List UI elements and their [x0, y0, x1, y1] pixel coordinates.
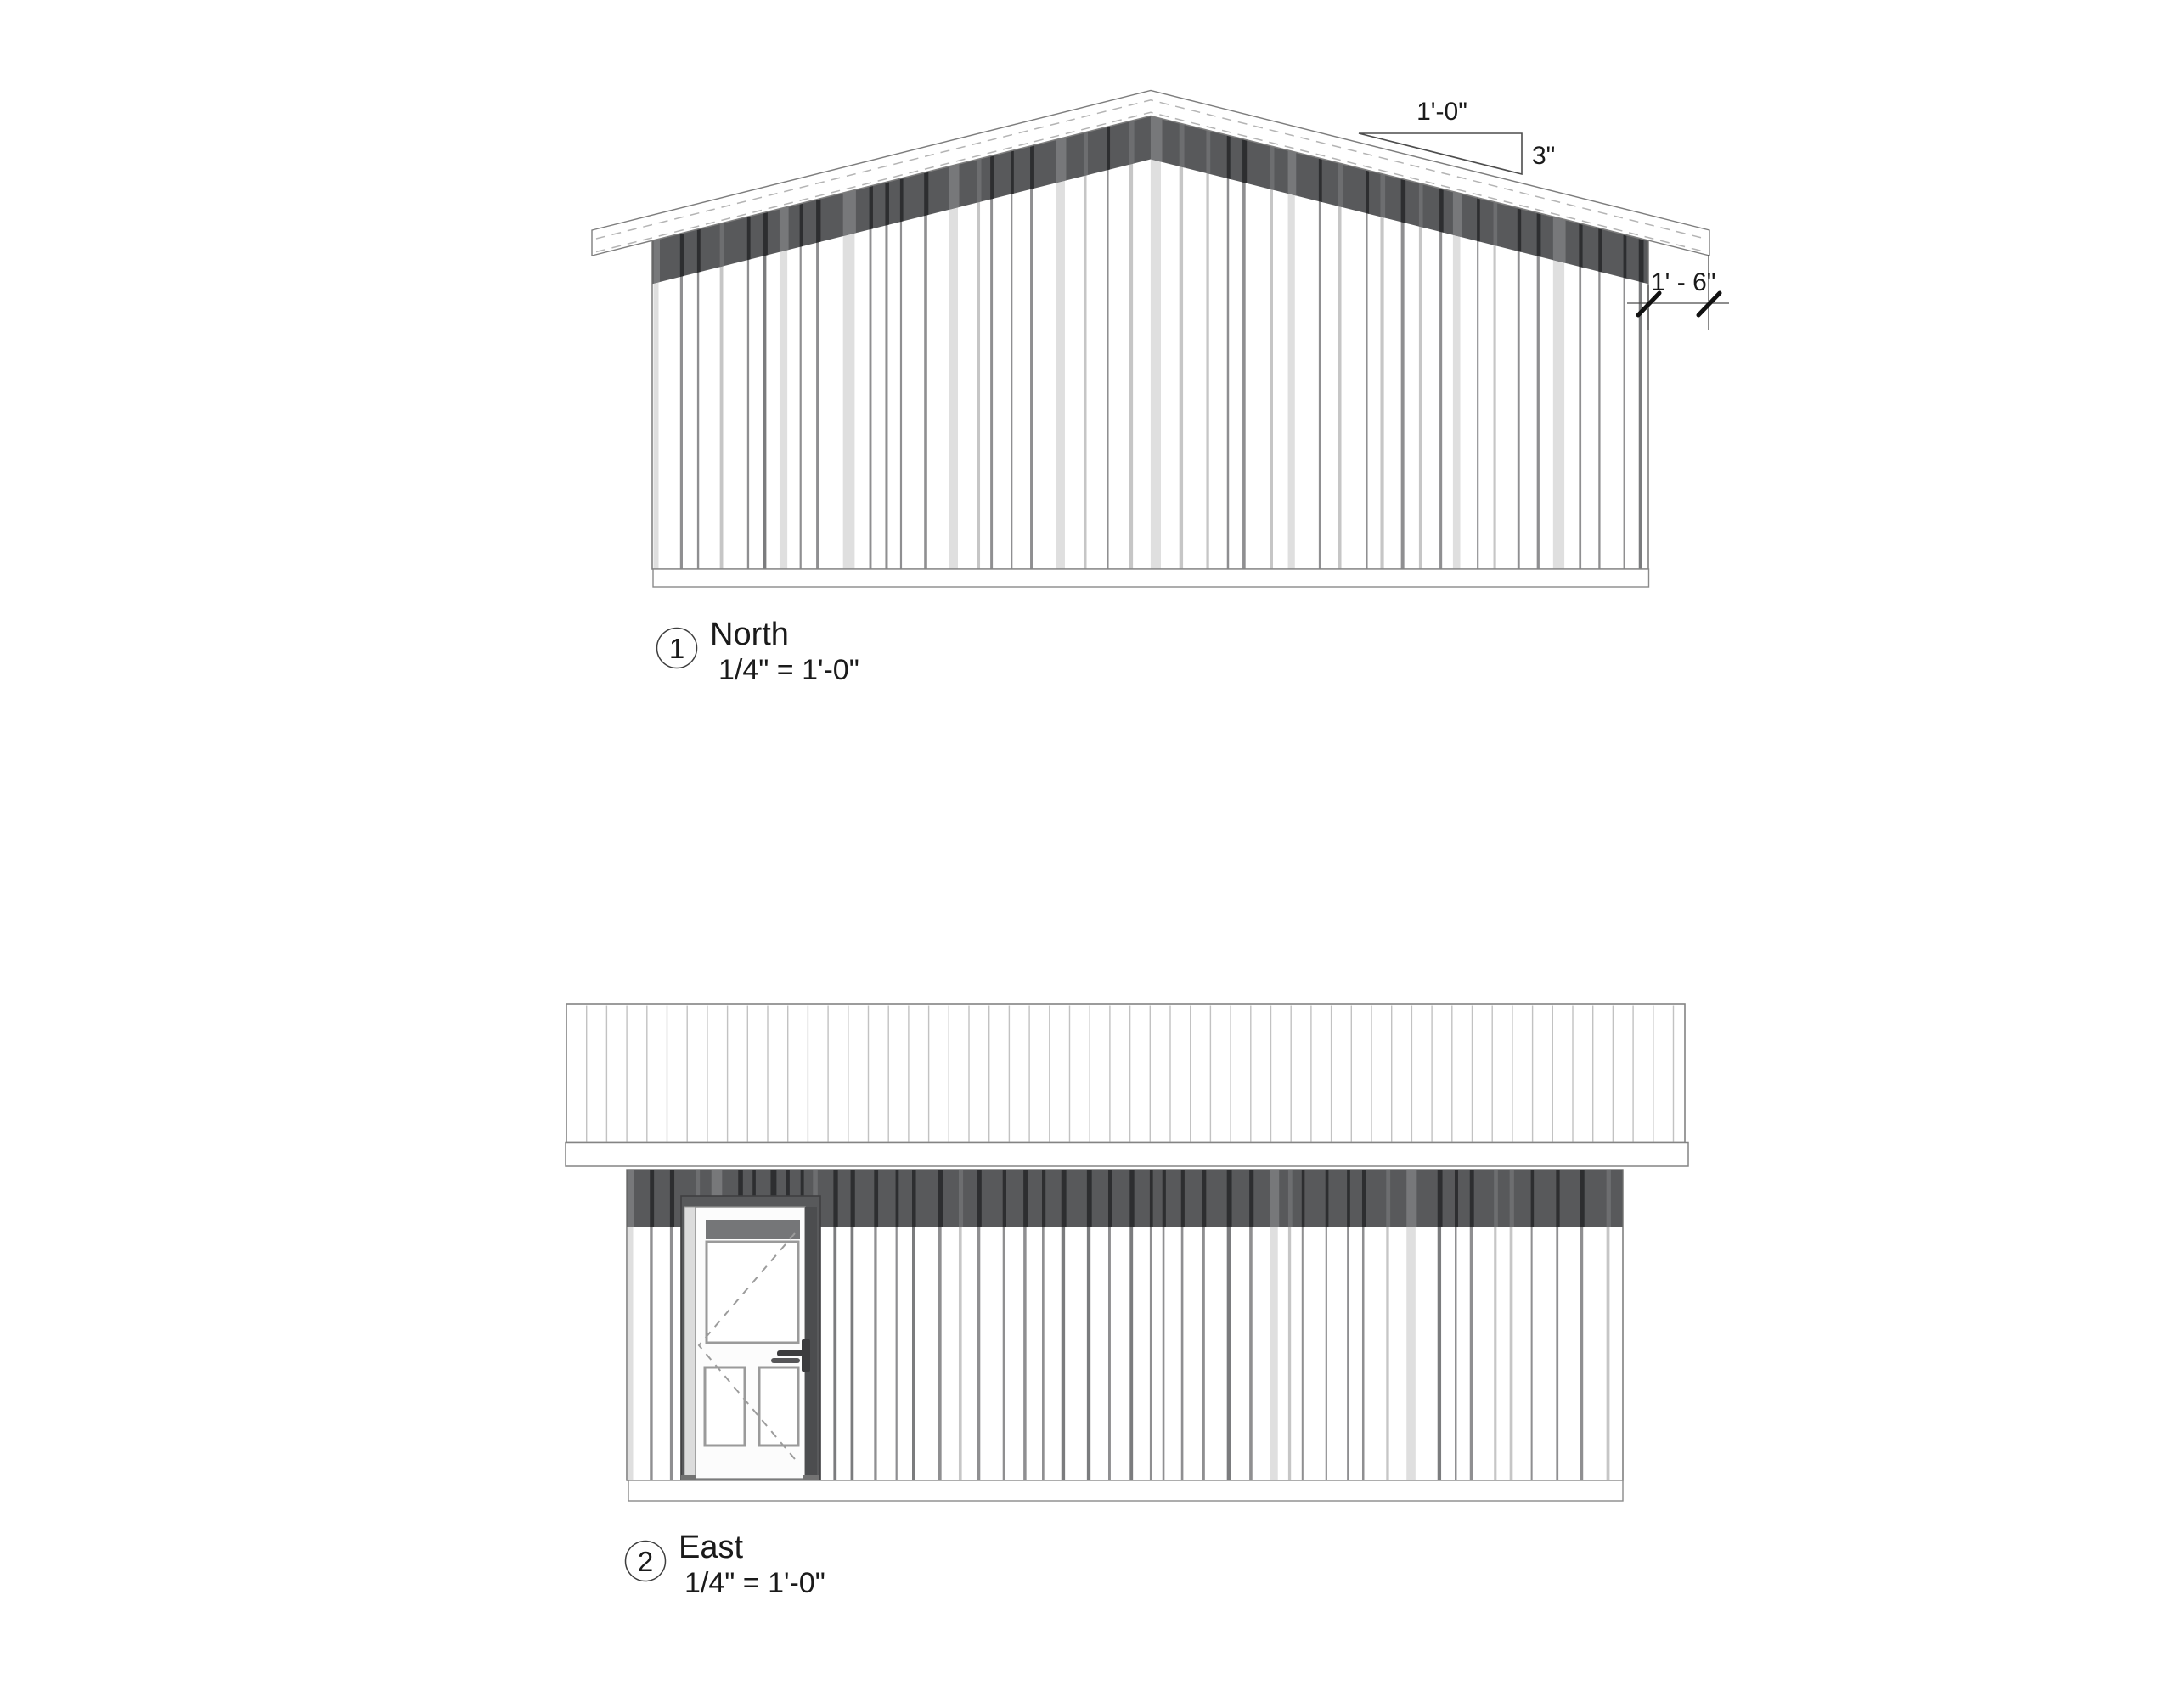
siding-seam-stripe — [697, 85, 699, 569]
door-glass-lite — [707, 1242, 798, 1343]
entry-door — [681, 1196, 820, 1482]
siding-seam-stripe — [697, 85, 701, 289]
siding-seam-stripe — [1510, 1170, 1514, 1227]
east-roof-fascia — [566, 1143, 1688, 1167]
siding-seam-stripe — [763, 85, 767, 569]
siding-seam-stripe — [1062, 1170, 1067, 1227]
siding-seam-stripe — [747, 85, 749, 569]
siding-seam-stripe — [1439, 85, 1442, 569]
siding-seam-stripe — [1455, 1170, 1458, 1227]
view-number: 1 — [669, 633, 684, 664]
siding-seam-stripe — [977, 1170, 982, 1227]
siding-seam-stripe — [1163, 1170, 1166, 1227]
siding-seam-stripe — [1202, 1170, 1206, 1227]
siding-seam-stripe — [747, 85, 751, 289]
siding-seam-stripe — [1598, 85, 1600, 569]
siding-seam-stripe — [720, 85, 724, 289]
siding-seam-stripe — [650, 1170, 654, 1227]
siding-seam-stripe — [1087, 1170, 1092, 1227]
siding-seam-stripe — [1624, 85, 1625, 569]
siding-seam-stripe — [1598, 85, 1602, 289]
view-title-text: North — [710, 617, 789, 652]
siding-seam-stripe — [1556, 1170, 1559, 1227]
siding-seam-stripe — [1477, 85, 1478, 569]
siding-seam-stripe — [1580, 1170, 1585, 1227]
siding-seam-stripe — [843, 85, 855, 569]
north-view-title: 1 North 1/4" = 1'-0" — [657, 617, 859, 686]
siding-seam-stripe — [1003, 1170, 1006, 1227]
siding-seam-stripe — [1023, 1170, 1028, 1227]
slope-run-label: 1'-0" — [1416, 98, 1467, 126]
siding-seam-stripe — [680, 85, 683, 569]
siding-seam-stripe — [896, 1170, 899, 1227]
siding-seam-stripe — [654, 85, 659, 569]
view-scale-text: 1/4" = 1'-0" — [684, 1567, 825, 1599]
door-lever-handle-inner — [771, 1358, 800, 1363]
door-lower-panel-right — [759, 1367, 798, 1446]
north-base-band — [653, 569, 1649, 587]
siding-seam-stripe — [1347, 1170, 1350, 1227]
siding-seam-stripe — [1518, 85, 1520, 569]
door-frame-left-strip — [684, 1207, 696, 1479]
siding-seam-stripe — [1227, 1170, 1232, 1227]
siding-seam-stripe — [720, 85, 724, 569]
siding-seam-stripe — [1438, 1170, 1443, 1227]
view-scale-text: 1/4" = 1'-0" — [718, 654, 859, 686]
siding-seam-stripe — [654, 85, 661, 289]
door-lever-handle — [777, 1350, 805, 1356]
door-lower-panel-left — [705, 1367, 745, 1446]
siding-seam-stripe — [1288, 1170, 1293, 1227]
siding-seam-stripe — [1579, 85, 1581, 569]
east-view-title: 2 East 1/4" = 1'-0" — [626, 1530, 825, 1599]
siding-seam-stripe — [1362, 1170, 1366, 1227]
view-number: 2 — [638, 1546, 653, 1577]
siding-seam-stripe — [1624, 85, 1627, 289]
siding-seam-stripe — [670, 1170, 674, 1227]
siding-seam-stripe — [833, 1170, 837, 1227]
siding-seam-stripe — [1406, 1170, 1416, 1227]
siding-seam-stripe — [1270, 1170, 1280, 1227]
siding-seam-stripe — [851, 1170, 855, 1227]
siding-seam-stripe — [1326, 1170, 1329, 1227]
siding-seam-stripe — [1386, 1170, 1390, 1227]
siding-seam-stripe — [1639, 85, 1642, 569]
eave-overhang-value: 1' - 6" — [1651, 268, 1715, 296]
siding-seam-stripe — [1531, 1170, 1535, 1227]
siding-seam-stripe — [870, 85, 872, 569]
siding-seam-stripe — [1607, 1170, 1611, 1227]
siding-seam-stripe — [1553, 85, 1566, 289]
siding-seam-stripe — [874, 1170, 878, 1227]
siding-seam-stripe — [1108, 1170, 1112, 1227]
east-roof-plane — [566, 1004, 1685, 1143]
siding-seam-stripe — [1302, 1170, 1305, 1227]
siding-seam-stripe — [800, 85, 802, 569]
siding-seam-stripe — [1579, 85, 1582, 289]
siding-seam-stripe — [1639, 85, 1644, 289]
door-transom-panel — [706, 1220, 800, 1239]
north-elevation-view: 1'-0" 3" 1' - 6" 1 North 1/4" = 1'-0" — [592, 85, 1729, 686]
siding-seam-stripe — [1249, 1170, 1253, 1227]
siding-seam-stripe — [1150, 1170, 1153, 1227]
siding-seam-stripe — [680, 85, 684, 289]
siding-seam-stripe — [1494, 85, 1496, 569]
siding-seam-stripe — [912, 1170, 916, 1227]
east-base-band — [628, 1480, 1623, 1501]
siding-seam-stripe — [816, 85, 819, 569]
slope-rise-label: 3" — [1532, 142, 1555, 170]
siding-seam-stripe — [1181, 1170, 1185, 1227]
siding-seam-stripe — [1494, 1170, 1498, 1227]
siding-seam-stripe — [628, 1170, 635, 1227]
siding-seam-stripe — [780, 85, 787, 569]
view-title-text: East — [679, 1530, 743, 1565]
drawing-sheet: 1'-0" 3" 1' - 6" 1 North 1/4" = 1'-0" — [0, 0, 2174, 1708]
siding-seam-stripe — [1129, 1170, 1134, 1227]
siding-seam-stripe — [959, 1170, 963, 1227]
east-elevation-view: 2 East 1/4" = 1'-0" — [566, 1004, 1688, 1599]
siding-seam-stripe — [1042, 1170, 1045, 1227]
elevation-drawing-canvas: 1'-0" 3" 1' - 6" 1 North 1/4" = 1'-0" — [0, 0, 2174, 1708]
siding-seam-stripe — [1470, 1170, 1474, 1227]
siding-seam-stripe — [938, 1170, 943, 1227]
